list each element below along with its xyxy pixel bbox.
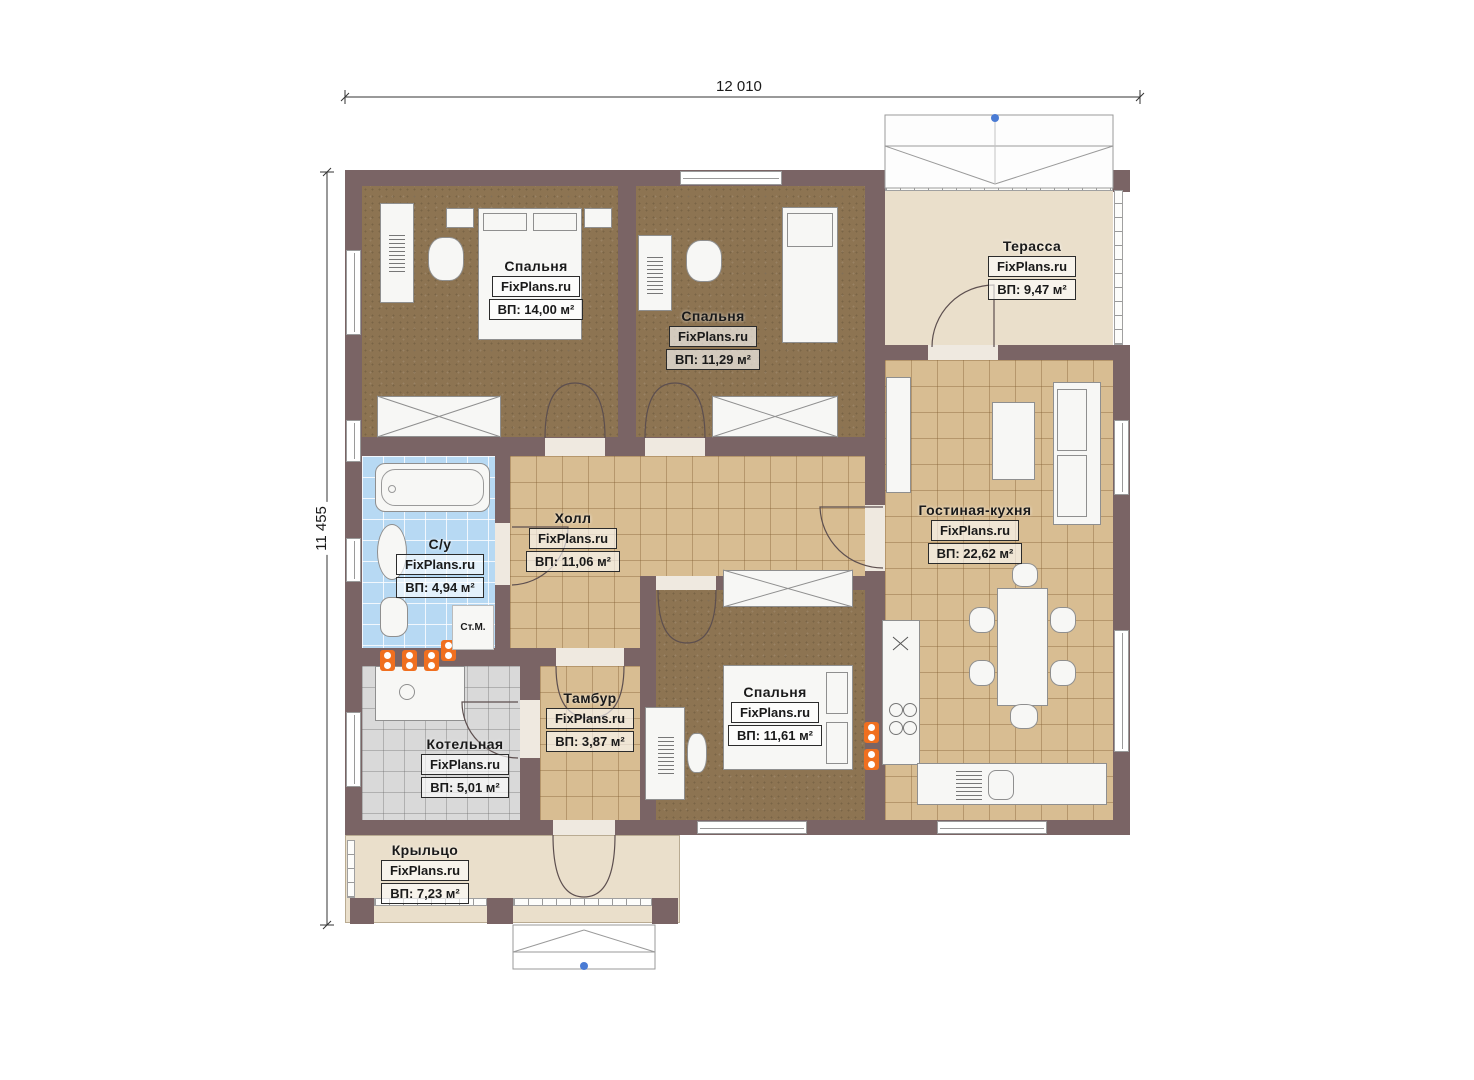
bed-bedroom-1 — [478, 208, 582, 340]
chair-bedroom-1 — [428, 237, 464, 281]
socket-kitchen-2 — [864, 749, 879, 770]
porch-stairs — [513, 925, 655, 970]
socket-boiler-1 — [380, 650, 395, 671]
floor-terrace — [885, 190, 1113, 345]
kitchen-counter-left — [882, 620, 920, 765]
door-opening-bedroom-2 — [645, 438, 705, 456]
window-top-bedroom-2 — [680, 171, 782, 185]
bed-bedroom-2 — [782, 207, 838, 343]
door-opening-bathroom — [495, 523, 510, 585]
dining-table — [997, 588, 1048, 706]
floor-hall-arm — [510, 576, 640, 648]
door-opening-entrance — [553, 820, 615, 835]
desk-bedroom-1 — [380, 203, 414, 303]
desk-bedroom-3 — [645, 707, 685, 800]
desk-bedroom-2 — [638, 235, 672, 311]
door-opening-bedroom-1 — [545, 438, 605, 456]
porch-column-2 — [487, 898, 513, 924]
cabinet-living — [886, 377, 911, 493]
wardrobe-bedroom-2 — [712, 396, 838, 437]
porch-rail-bottom-2 — [513, 898, 652, 906]
window-left-bathroom — [346, 538, 361, 582]
window-left-small — [346, 420, 361, 462]
porch-column-3 — [652, 898, 678, 924]
toilet — [380, 597, 408, 637]
bed-bedroom-3 — [723, 665, 853, 770]
porch-rail-bottom-1 — [374, 898, 487, 906]
dining-chair-right-2 — [1050, 660, 1076, 686]
nightstand-bedroom-1-right — [584, 208, 612, 228]
coffee-table — [992, 402, 1035, 480]
sink-bathroom — [377, 524, 407, 580]
washing-machine: Ст.М. — [452, 605, 494, 650]
terrace-railing-right — [1114, 190, 1123, 345]
floor-vestibule — [540, 666, 640, 820]
chair-bedroom-3 — [687, 733, 707, 773]
window-bottom-bedroom-3 — [697, 821, 807, 834]
socket-boiler-2 — [402, 650, 417, 671]
sofa — [1053, 382, 1101, 525]
floor-plan: Ст.М. — [0, 0, 1474, 1080]
porch-rail-left — [347, 840, 355, 898]
socket-kitchen-1 — [864, 722, 879, 743]
door-opening-living-terrace — [928, 345, 998, 360]
dimension-height-label: 11 455 — [313, 502, 330, 555]
dining-chair-right-1 — [1050, 607, 1076, 633]
dimension-width-label: 12 010 — [712, 78, 766, 95]
window-right-living-2 — [1114, 630, 1129, 752]
door-opening-boiler — [520, 700, 540, 758]
door-opening-hall-living — [865, 505, 885, 571]
boiler-counter — [375, 666, 465, 721]
window-left-boiler — [346, 712, 361, 787]
dining-chair-left-2 — [969, 660, 995, 686]
floor-hall — [510, 456, 865, 576]
dining-chair-left-1 — [969, 607, 995, 633]
wardrobe-bedroom-1 — [377, 396, 501, 437]
window-left-bedroom-1 — [346, 250, 361, 335]
wardrobe-bedroom-3 — [723, 570, 853, 607]
chair-bedroom-2 — [686, 240, 722, 282]
terrace-roof — [885, 114, 1113, 188]
window-bottom-kitchen — [937, 821, 1047, 834]
kitchen-counter-bottom — [917, 763, 1107, 805]
door-opening-bedroom-3 — [656, 576, 716, 590]
nightstand-bedroom-1-left — [446, 208, 474, 228]
door-opening-vestibule-hall — [556, 648, 624, 666]
window-right-living-1 — [1114, 420, 1129, 495]
terrace-glazing-top — [885, 182, 1113, 191]
dining-chair-bottom — [1010, 704, 1038, 729]
bathtub — [375, 463, 490, 512]
dining-chair-top — [1012, 563, 1038, 587]
socket-boiler-3 — [424, 650, 439, 671]
washing-machine-label: Ст.М. — [460, 622, 485, 633]
porch-column-1 — [350, 898, 374, 924]
